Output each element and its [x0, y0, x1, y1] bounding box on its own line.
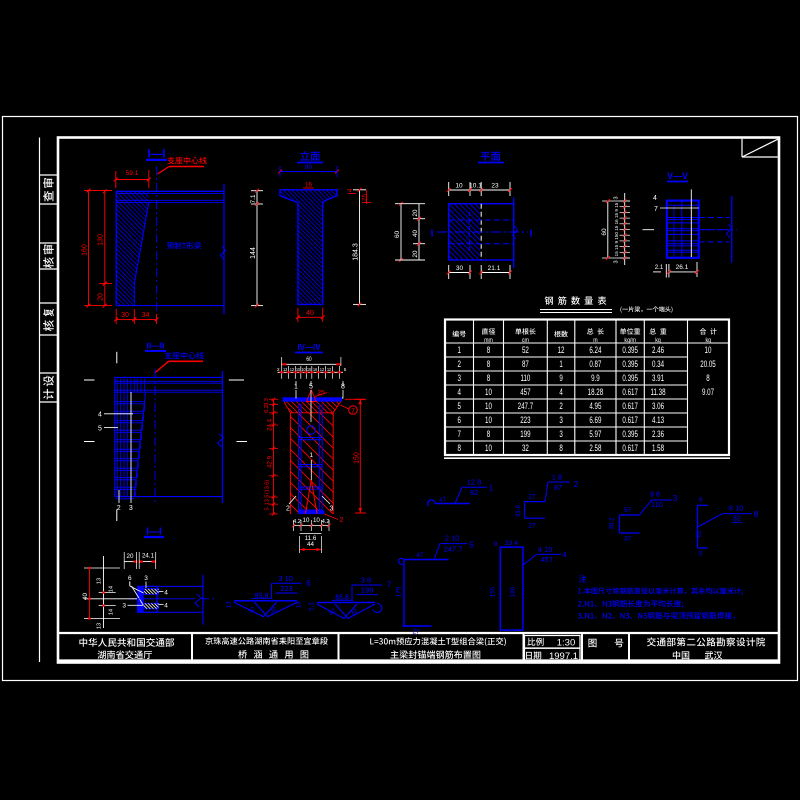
svg-text:32: 32: [733, 514, 741, 523]
svg-text:0.395: 0.395: [622, 429, 638, 440]
svg-text:38.2: 38.2: [609, 517, 616, 530]
svg-text:5: 5: [344, 367, 347, 372]
svg-text:247.7: 247.7: [518, 401, 534, 412]
svg-text:0.617: 0.617: [622, 387, 638, 398]
svg-text:10.1: 10.1: [469, 183, 482, 190]
svg-text:0.34: 0.34: [652, 359, 665, 370]
svg-text:3: 3: [330, 506, 334, 513]
svg-text:61: 61: [696, 530, 703, 537]
svg-text:10: 10: [485, 443, 492, 454]
svg-text:175: 175: [396, 586, 403, 597]
svg-text:8: 8: [706, 373, 710, 384]
svg-text:12: 12: [290, 366, 295, 372]
svg-text:40: 40: [82, 593, 89, 600]
svg-text:6: 6: [458, 415, 462, 426]
svg-text:52: 52: [522, 345, 529, 356]
svg-text:223: 223: [520, 415, 531, 426]
svg-text:5: 5: [265, 507, 271, 510]
svg-text:160: 160: [82, 244, 89, 256]
svg-text:5.3: 5.3: [309, 602, 316, 611]
svg-text:20: 20: [127, 553, 134, 560]
svg-text:57: 57: [624, 507, 632, 514]
svg-text:110: 110: [520, 373, 530, 384]
svg-text:20: 20: [412, 250, 419, 257]
svg-text:30: 30: [456, 265, 464, 272]
svg-text:10: 10: [303, 517, 310, 524]
svg-text:2: 2: [574, 480, 579, 489]
svg-text:24.4: 24.4: [267, 418, 274, 431]
svg-text:2: 2: [458, 359, 462, 370]
svg-text:6: 6: [306, 579, 311, 588]
svg-text:3: 3: [559, 429, 563, 440]
svg-text:7.1: 7.1: [250, 194, 257, 203]
svg-text:0.617: 0.617: [622, 443, 638, 454]
svg-text:4.2: 4.2: [322, 519, 330, 525]
svg-text:32: 32: [522, 443, 529, 454]
svg-text:9 8: 9 8: [650, 490, 660, 499]
svg-text:9.9: 9.9: [591, 373, 600, 384]
svg-text:3: 3: [144, 575, 148, 582]
svg-text:10: 10: [485, 387, 492, 398]
svg-text:V—V: V—V: [667, 171, 688, 181]
svg-text:13: 13: [97, 623, 103, 629]
svg-text:(13.6): (13.6): [265, 480, 271, 495]
svg-text:8 10: 8 10: [729, 504, 744, 513]
svg-text:144: 144: [250, 247, 257, 259]
svg-text:3: 3: [129, 505, 133, 512]
svg-text:kg/m: kg/m: [624, 337, 635, 344]
svg-text:1: 1: [559, 359, 563, 370]
svg-text:457: 457: [520, 387, 531, 398]
svg-text:92: 92: [470, 488, 478, 497]
svg-text:cm: cm: [522, 337, 529, 344]
svg-text:130: 130: [98, 234, 105, 246]
svg-text:31.6: 31.6: [515, 504, 522, 517]
svg-text:8: 8: [458, 443, 462, 454]
svg-text:27: 27: [528, 494, 536, 501]
svg-text:150: 150: [353, 452, 360, 464]
svg-text:kg: kg: [705, 337, 711, 344]
svg-text:19: 19: [296, 601, 303, 608]
svg-text:59.1: 59.1: [126, 170, 139, 177]
svg-text:34: 34: [142, 312, 150, 319]
svg-text:6.24: 6.24: [589, 345, 602, 356]
svg-text:7: 7: [351, 408, 355, 415]
svg-text:2.46: 2.46: [652, 345, 665, 356]
svg-text:3: 3: [122, 603, 126, 610]
svg-text:4.95: 4.95: [589, 401, 602, 412]
svg-text:2: 2: [286, 506, 290, 513]
svg-text:20.05: 20.05: [700, 359, 716, 370]
svg-text:5: 5: [699, 551, 703, 558]
svg-text:5: 5: [458, 401, 462, 412]
svg-text:4.13: 4.13: [652, 415, 665, 426]
svg-text:6.2: 6.2: [264, 405, 270, 413]
svg-text:20: 20: [412, 209, 419, 216]
svg-text:12 8: 12 8: [467, 478, 482, 487]
svg-text:2: 2: [340, 517, 344, 524]
svg-text:1:30: 1:30: [557, 638, 576, 649]
svg-text:9.07: 9.07: [702, 387, 715, 398]
svg-text:20: 20: [98, 293, 105, 301]
svg-text:IV—IV: IV—IV: [297, 343, 321, 352]
svg-text:4: 4: [559, 387, 563, 398]
svg-text:14: 14: [109, 586, 115, 592]
svg-text:3: 3: [458, 373, 462, 384]
svg-text:4.2: 4.2: [293, 519, 301, 525]
svg-text:3: 3: [673, 494, 678, 503]
svg-text:3.3: 3.3: [264, 398, 270, 406]
svg-text:1.58: 1.58: [652, 443, 665, 454]
svg-text:23: 23: [491, 183, 499, 190]
svg-text:1: 1: [309, 452, 313, 459]
svg-text:10: 10: [485, 415, 492, 426]
svg-text:6: 6: [128, 575, 132, 582]
svg-text:186: 186: [510, 586, 517, 597]
svg-text:I: I: [530, 229, 533, 240]
svg-text:7: 7: [458, 429, 462, 440]
svg-text:199: 199: [361, 586, 374, 595]
svg-text:I—I: I—I: [146, 527, 162, 538]
svg-text:247.7: 247.7: [444, 545, 463, 554]
svg-text:8: 8: [487, 429, 491, 440]
svg-text:5: 5: [98, 426, 102, 433]
svg-text:13: 13: [283, 366, 288, 372]
svg-text:9: 9: [559, 373, 563, 384]
svg-text:26.1: 26.1: [676, 264, 689, 271]
svg-text:4: 4: [164, 590, 168, 597]
svg-text:10: 10: [455, 183, 463, 190]
svg-text:3: 3: [614, 260, 620, 263]
svg-text:9: 9: [494, 541, 498, 548]
svg-text:m: m: [593, 337, 597, 344]
svg-text:47: 47: [417, 552, 424, 559]
svg-text:11.38: 11.38: [650, 387, 665, 398]
svg-text:25: 25: [363, 194, 369, 201]
svg-text:6: 6: [699, 497, 703, 504]
svg-text:0.395: 0.395: [622, 373, 638, 384]
svg-text:1: 1: [458, 345, 462, 356]
svg-text:3 8: 3 8: [361, 576, 371, 585]
svg-text:110: 110: [651, 500, 663, 509]
svg-text:10: 10: [705, 345, 712, 356]
svg-text:10: 10: [485, 401, 492, 412]
svg-text:13: 13: [226, 601, 233, 608]
svg-text:8: 8: [487, 359, 491, 370]
svg-text:223: 223: [280, 584, 293, 593]
svg-text:44: 44: [307, 541, 314, 548]
svg-text:2: 2: [117, 505, 121, 512]
svg-text:27: 27: [412, 629, 420, 636]
svg-text:I—I: I—I: [148, 149, 166, 161]
svg-text:1997.1: 1997.1: [549, 651, 578, 662]
svg-text:80: 80: [305, 164, 313, 171]
svg-text:6.69: 6.69: [589, 415, 602, 426]
svg-text:4: 4: [98, 412, 102, 419]
svg-text:4: 4: [164, 603, 168, 610]
svg-text:2: 2: [277, 367, 280, 372]
svg-text:5.97: 5.97: [589, 429, 602, 440]
svg-text:8: 8: [559, 443, 563, 454]
svg-text:13.5: 13.5: [265, 495, 271, 506]
svg-text:2.36: 2.36: [652, 429, 665, 440]
svg-text:4 10: 4 10: [538, 545, 553, 554]
svg-text:0.395: 0.395: [622, 345, 638, 356]
svg-text:87: 87: [522, 359, 529, 370]
svg-text:mm: mm: [484, 337, 493, 344]
svg-text:12: 12: [558, 345, 565, 356]
svg-text:199: 199: [520, 429, 531, 440]
svg-text:3.91: 3.91: [652, 373, 665, 384]
svg-text:87: 87: [554, 483, 562, 492]
svg-text:60: 60: [601, 228, 608, 236]
svg-text:2 10: 2 10: [445, 534, 460, 543]
svg-text:12: 12: [320, 366, 325, 372]
svg-text:kg: kg: [655, 337, 661, 344]
svg-text:8: 8: [487, 373, 491, 384]
svg-text:1: 1: [489, 484, 494, 493]
svg-text:4: 4: [562, 551, 567, 560]
svg-text:16: 16: [305, 182, 312, 189]
svg-text:12: 12: [327, 366, 332, 372]
svg-text:8: 8: [754, 510, 759, 519]
svg-text:II—II: II—II: [147, 341, 165, 351]
svg-text:21.1: 21.1: [488, 265, 501, 272]
svg-text:3 10: 3 10: [278, 574, 293, 583]
svg-text:4: 4: [653, 195, 657, 202]
svg-text:60: 60: [394, 231, 401, 239]
svg-text:2.1: 2.1: [655, 264, 664, 271]
svg-text:3: 3: [614, 196, 620, 199]
svg-text:10: 10: [307, 366, 312, 372]
svg-text:184.3: 184.3: [353, 243, 360, 261]
svg-text:1 8: 1 8: [552, 473, 562, 482]
svg-text:8: 8: [487, 345, 491, 356]
svg-text:13: 13: [97, 578, 103, 584]
svg-text:0.617: 0.617: [622, 415, 638, 426]
svg-text:4: 4: [458, 387, 462, 398]
svg-text:10: 10: [296, 366, 301, 372]
svg-text:2: 2: [559, 401, 563, 412]
svg-text:10: 10: [313, 517, 320, 524]
svg-text:457: 457: [540, 555, 553, 564]
svg-text:60: 60: [306, 356, 311, 363]
svg-text:7: 7: [387, 581, 392, 590]
svg-text:27: 27: [528, 523, 536, 530]
svg-text:10: 10: [302, 366, 307, 372]
svg-text:2.58: 2.58: [589, 443, 602, 454]
svg-text:16: 16: [313, 366, 318, 372]
svg-text:3: 3: [559, 415, 563, 426]
svg-text:18.28: 18.28: [588, 387, 604, 398]
svg-text:0.395: 0.395: [622, 359, 638, 370]
svg-text:3.06: 3.06: [652, 401, 665, 412]
svg-text:40: 40: [412, 230, 419, 237]
svg-text:30: 30: [121, 312, 129, 319]
svg-text:7: 7: [654, 206, 658, 213]
svg-text:33.4: 33.4: [505, 540, 518, 547]
svg-text:155: 155: [490, 586, 497, 597]
svg-text:37: 37: [624, 536, 632, 543]
svg-text:I: I: [431, 229, 434, 240]
svg-text:0.617: 0.617: [622, 401, 638, 412]
svg-text:14: 14: [109, 609, 115, 615]
svg-text:15 15 9 150 15 16 15 9 15: 15 15 9 150 15 16 15 9 15: [614, 202, 619, 256]
svg-text:5: 5: [469, 541, 474, 550]
svg-text:42.9: 42.9: [267, 455, 274, 468]
svg-text:24.1: 24.1: [142, 553, 155, 560]
svg-text:0.87: 0.87: [589, 359, 602, 370]
svg-text:40: 40: [306, 310, 314, 317]
